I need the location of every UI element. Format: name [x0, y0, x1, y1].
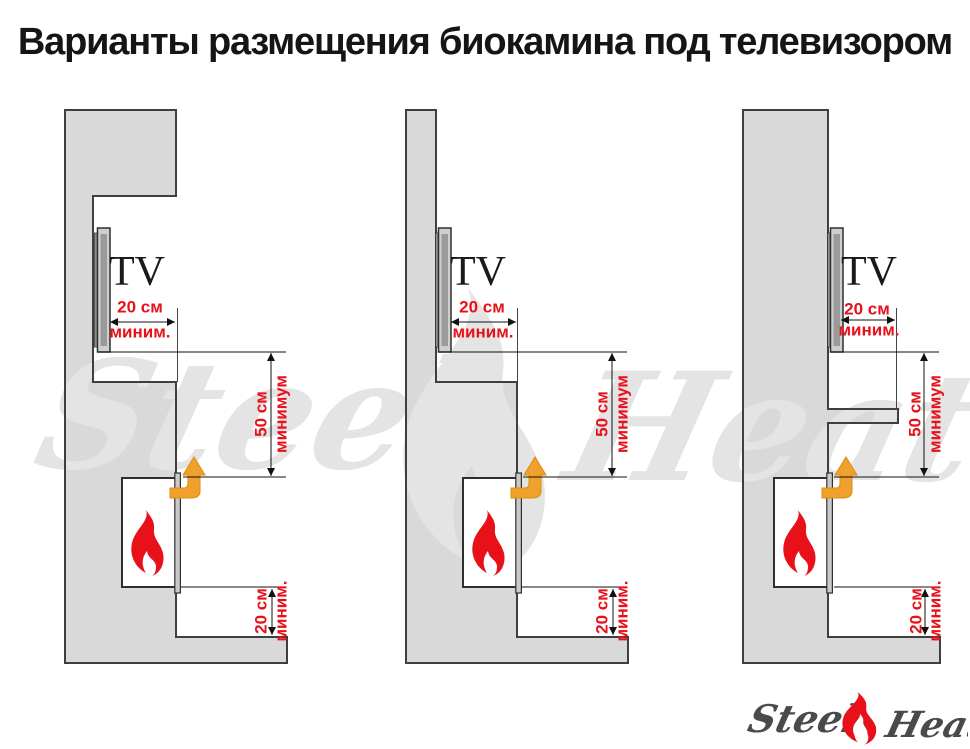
dim-top-value: 20 см [844, 301, 890, 318]
tv-screen-1 [95, 228, 111, 352]
dim-bottom-qualifier: миним. [927, 580, 944, 641]
diagram-overlay-layer [0, 0, 970, 749]
dim-middle-value: 50 см [907, 391, 924, 437]
logo-word-heat: Heat [881, 704, 968, 746]
dim-middle-value: 50 см [594, 391, 611, 437]
dim-bottom-value: 20 см [908, 588, 925, 634]
dim-middle-qualifier: минимум [614, 375, 631, 453]
dim-middle-qualifier: минимум [927, 375, 944, 453]
dim-bottom-value: 20 см [594, 588, 611, 634]
tv-screen-2 [436, 228, 452, 352]
dim-top-value: 20 см [459, 299, 505, 316]
dim-top-qualifier: миним. [452, 324, 513, 341]
dim-top-qualifier: миним. [109, 324, 170, 341]
brand-logo: Steel Heat [738, 686, 968, 748]
dim-bottom-qualifier: миним. [273, 580, 290, 641]
dim-top-qualifier: миним. [838, 322, 899, 339]
dim-middle-value: 50 см [253, 391, 270, 437]
wall-outline-3 [743, 110, 940, 663]
dim-bottom-value: 20 см [253, 588, 270, 634]
dim-middle-qualifier: минимум [273, 375, 290, 453]
tv-label: TV [109, 251, 165, 293]
tv-label: TV [450, 251, 506, 293]
poster-canvas: Варианты размещения биокамина под телеви… [0, 0, 970, 749]
tv-label: TV [841, 251, 897, 293]
dim-top-value: 20 см [117, 299, 163, 316]
dim-bottom-qualifier: миним. [614, 580, 631, 641]
